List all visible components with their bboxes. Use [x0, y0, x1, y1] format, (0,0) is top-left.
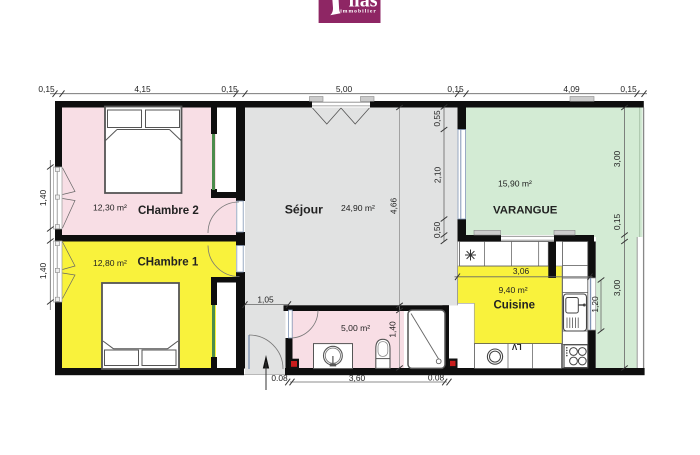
svg-text:5,00 m²: 5,00 m²: [341, 323, 370, 333]
svg-text:Séjour: Séjour: [285, 203, 323, 217]
svg-text:Cuisine: Cuisine: [494, 300, 536, 312]
svg-text:CHambre 2: CHambre 2: [138, 205, 199, 217]
svg-text:0.08: 0.08: [271, 373, 288, 383]
svg-text:0,15: 0,15: [221, 84, 238, 94]
svg-text:0,15: 0,15: [612, 214, 622, 231]
svg-text:5,00: 5,00: [336, 84, 353, 94]
svg-text:24,90 m²: 24,90 m²: [341, 203, 375, 213]
svg-text:immobilier: immobilier: [340, 8, 377, 14]
svg-text:0.08: 0.08: [428, 373, 445, 383]
svg-text:CHambre 1: CHambre 1: [138, 257, 199, 269]
svg-text:0,50: 0,50: [432, 222, 442, 239]
svg-text:12,80 m²: 12,80 m²: [93, 258, 127, 268]
svg-text:0,15: 0,15: [38, 84, 55, 94]
svg-text:4,09: 4,09: [563, 84, 580, 94]
svg-text:3,06: 3,06: [513, 266, 530, 276]
svg-text:3,00: 3,00: [612, 280, 622, 297]
svg-text:3,00: 3,00: [612, 151, 622, 168]
svg-text:0,15: 0,15: [620, 84, 637, 94]
svg-text:2,10: 2,10: [433, 167, 443, 184]
svg-text:12,30 m²: 12,30 m²: [93, 203, 127, 213]
svg-text:1,40: 1,40: [38, 190, 48, 207]
svg-text:0,15: 0,15: [447, 84, 464, 94]
svg-text:9,40 m²: 9,40 m²: [499, 285, 528, 295]
svg-text:3,60: 3,60: [349, 373, 366, 383]
svg-text:4,66: 4,66: [389, 198, 399, 215]
svg-text:LV: LV: [511, 342, 521, 351]
svg-text:1,05: 1,05: [257, 295, 274, 305]
svg-text:1,40: 1,40: [388, 321, 398, 338]
svg-text:1,20: 1,20: [590, 296, 600, 313]
svg-text:4,15: 4,15: [134, 84, 151, 94]
svg-text:1,40: 1,40: [38, 263, 48, 280]
svg-text:15,90 m²: 15,90 m²: [498, 179, 532, 189]
svg-text:0,55: 0,55: [432, 110, 442, 127]
svg-text:VARANGUE: VARANGUE: [493, 205, 558, 217]
